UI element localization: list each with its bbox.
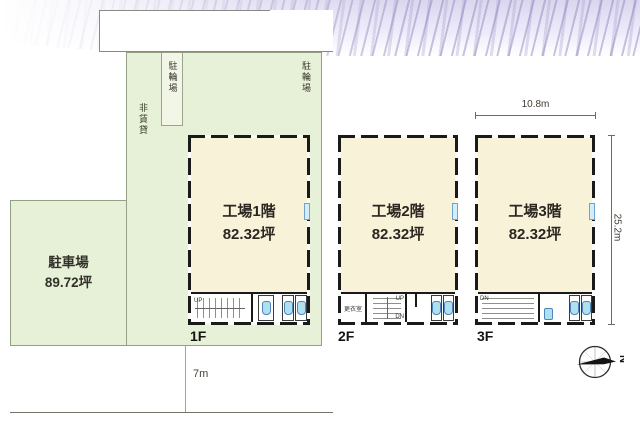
compass-icon: N bbox=[574, 341, 624, 387]
frontage-dimension-label: 10.8m bbox=[475, 99, 596, 110]
wall-bottom bbox=[475, 322, 595, 325]
top-road-area bbox=[99, 10, 333, 52]
toilet-stall bbox=[282, 295, 294, 321]
stair-room-2f: UP DN bbox=[369, 294, 407, 322]
service-strip-3f: DN bbox=[478, 292, 592, 322]
toilet-stall bbox=[569, 295, 580, 321]
parking-area: 駐車場 89.72坪 bbox=[10, 200, 127, 346]
road-dimension-line bbox=[185, 346, 186, 413]
top-road-edge-line bbox=[99, 10, 270, 11]
stair-up-text: UP bbox=[194, 298, 202, 304]
dimension-tick bbox=[595, 112, 596, 119]
stair-dn-text: DN bbox=[480, 296, 489, 302]
toilet-fixture bbox=[570, 301, 579, 315]
building-2f: 工場2階 82.32坪 更衣室 UP DN bbox=[338, 135, 458, 325]
toilet-stall bbox=[443, 295, 454, 321]
floor-2-title: 工場2階 bbox=[338, 201, 458, 224]
bicycle-parking-right-label: 駐輪場 bbox=[301, 61, 310, 94]
wall-bottom bbox=[338, 322, 458, 325]
floor-1-title: 工場1階 bbox=[188, 201, 310, 224]
floor-2-area: 82.32坪 bbox=[338, 224, 458, 247]
non-leased-label: 非賃貸 bbox=[138, 103, 147, 136]
floor-tag-2f: 2F bbox=[338, 328, 354, 344]
floor-1-area: 82.32坪 bbox=[188, 224, 310, 247]
dressing-room: 更衣室 bbox=[341, 294, 367, 322]
wall-top bbox=[188, 135, 310, 138]
stair-room-3f: DN bbox=[478, 294, 540, 322]
bicycle-parking-left-label: 駐輪場 bbox=[168, 61, 177, 94]
toilet-stall bbox=[581, 295, 592, 321]
stair-arrow bbox=[195, 308, 245, 309]
floor-tag-3f: 3F bbox=[477, 328, 493, 344]
bottom-road-edge-line bbox=[10, 412, 333, 413]
north-label: N bbox=[617, 355, 624, 363]
stair-up-text: UP bbox=[396, 296, 404, 302]
floorplan-canvas: 駐車場 89.72坪 駐輪場 駐輪場 非賃貸 工場1階 82.32坪 UP bbox=[0, 0, 640, 428]
toilet-stall bbox=[258, 295, 274, 321]
stair-dn-text: DN bbox=[395, 314, 404, 320]
frontage-dimension-line bbox=[475, 115, 596, 116]
toilet-fixture bbox=[582, 301, 591, 315]
toilet-fixture bbox=[432, 301, 441, 315]
stair-treads bbox=[482, 297, 534, 319]
dimension-tick bbox=[475, 112, 476, 119]
bicycle-parking-left: 駐輪場 bbox=[161, 53, 183, 126]
wall-bottom bbox=[188, 322, 310, 325]
dressing-room-label: 更衣室 bbox=[344, 304, 362, 313]
toilet-fixture bbox=[444, 301, 453, 315]
parking-label: 駐車場 bbox=[45, 253, 92, 273]
building-3f: 工場3階 82.32坪 DN bbox=[475, 135, 595, 325]
service-strip-2f: 更衣室 UP DN bbox=[341, 292, 455, 322]
toilet-stall bbox=[431, 295, 442, 321]
wall-top bbox=[338, 135, 458, 138]
floor-3-title: 工場3階 bbox=[475, 201, 595, 224]
partition-wall bbox=[415, 294, 417, 307]
road-dimension-label: 7m bbox=[193, 368, 208, 380]
stair-divider bbox=[387, 297, 388, 319]
stair-room-1f: UP bbox=[191, 294, 253, 322]
service-strip-1f: UP bbox=[191, 292, 307, 322]
dimension-tick bbox=[608, 135, 615, 136]
floor-tag-1f: 1F bbox=[190, 328, 206, 344]
toilet-fixture bbox=[262, 301, 271, 315]
sink-fixture bbox=[544, 308, 553, 320]
wall-top bbox=[475, 135, 595, 138]
bicycle-parking-right: 駐輪場 bbox=[293, 53, 318, 126]
toilet-fixture bbox=[297, 301, 306, 315]
toilet-stall bbox=[295, 295, 307, 321]
parking-area-value: 89.72坪 bbox=[45, 273, 92, 293]
dimension-tick bbox=[608, 324, 615, 325]
floor-3-area: 82.32坪 bbox=[475, 224, 595, 247]
toilet-fixture bbox=[284, 301, 293, 315]
depth-dimension-label: 25.2m bbox=[612, 205, 623, 251]
building-1f: 工場1階 82.32坪 UP bbox=[188, 135, 310, 325]
